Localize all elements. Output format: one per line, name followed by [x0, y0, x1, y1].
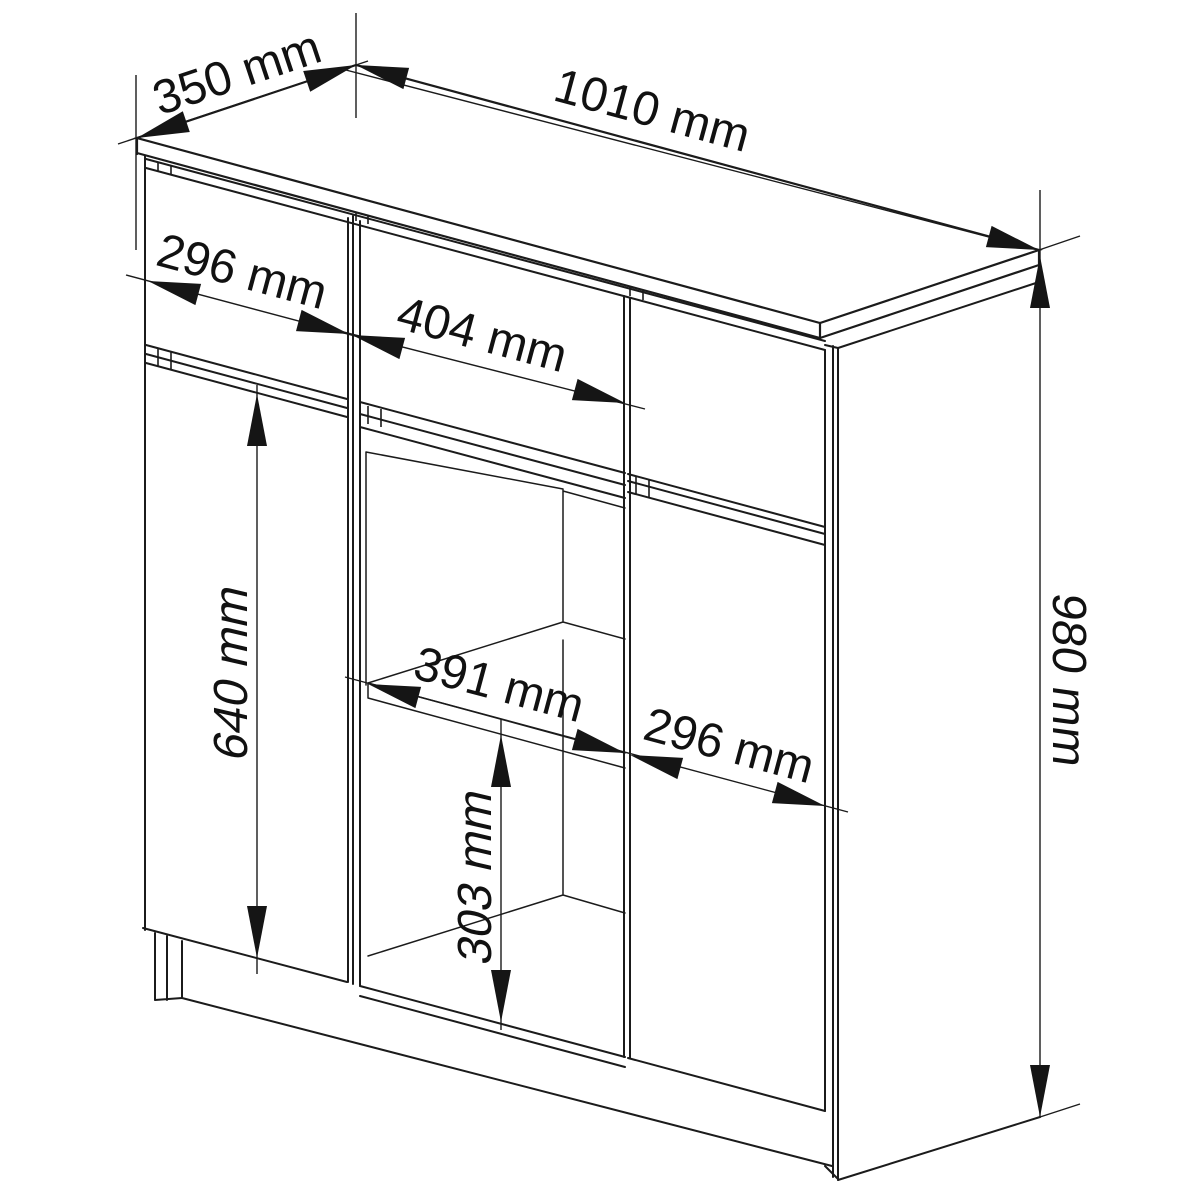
dimension-top-depth-350: 350 mm: [118, 21, 368, 144]
furniture-dimension-drawing: 350 mm 1010 mm 296 mm 404 mm 640 mm 391 …: [0, 0, 1200, 1200]
arrowhead: [572, 729, 625, 753]
dimension-middle-drawer-404: 404 mm: [332, 287, 645, 409]
cabinet-technical-drawing: 350 mm 1010 mm 296 mm 404 mm 640 mm 391 …: [0, 0, 1200, 1200]
arrowhead: [1030, 256, 1050, 308]
dimension-label-top-depth: 350 mm: [146, 21, 327, 126]
arrowhead: [986, 226, 1039, 250]
dimension-shelf-height-303: 303 mm: [449, 719, 511, 1030]
dimension-left-drawer-296: 296 mm: [126, 224, 400, 348]
arrowhead: [356, 65, 409, 89]
arrowhead: [247, 906, 267, 958]
arrowhead: [491, 970, 511, 1022]
arrowhead: [491, 735, 511, 787]
arrowhead: [572, 379, 625, 403]
dimension-left-door-640: 640 mm: [205, 385, 267, 974]
extension-lines: [136, 13, 1080, 1117]
dimension-label-left-door: 640 mm: [205, 580, 258, 766]
dimension-label-shelf-height: 303 mm: [449, 784, 502, 970]
dimension-total-height-980: 980 mm: [1030, 190, 1096, 1118]
dimension-label-top-width: 1010 mm: [549, 59, 756, 163]
dimension-shelf-width-391: 391 mm: [345, 637, 848, 812]
arrowhead: [1030, 1065, 1050, 1117]
dimension-label-total-height: 980 mm: [1042, 590, 1096, 771]
dimension-label-middle-drawer: 404 mm: [391, 287, 572, 383]
arrowhead: [247, 394, 267, 446]
dimension-right-door-296: 296 mm: [630, 698, 825, 806]
